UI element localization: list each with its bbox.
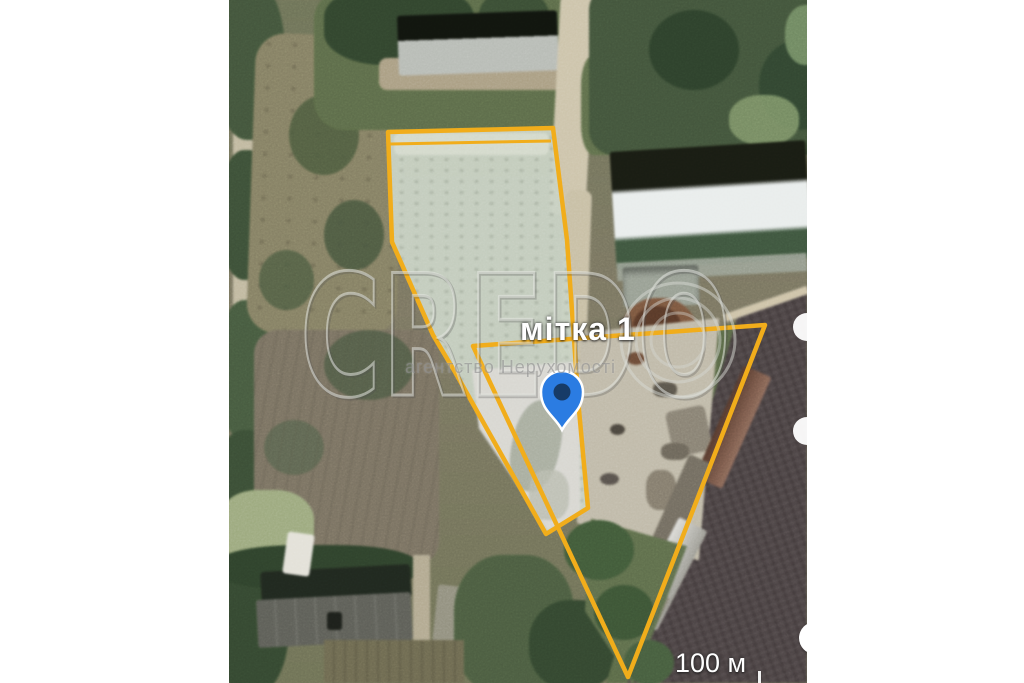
terrain-patch <box>259 250 314 310</box>
terrain-patch <box>324 330 414 400</box>
terrain-patch <box>653 382 677 397</box>
left-margin <box>0 0 229 683</box>
terrain-patch <box>324 200 384 270</box>
scale-label: 100 м <box>675 648 746 679</box>
terrain-patch <box>394 133 549 155</box>
terrain-patch <box>649 10 739 90</box>
terrain-patch <box>564 520 634 580</box>
terrain-patch <box>610 424 625 435</box>
terrain-patch <box>624 640 674 683</box>
right-margin <box>807 0 1024 683</box>
small-white-hut <box>282 531 315 576</box>
terrain-patch <box>264 420 324 475</box>
terrain-patch <box>729 95 799 145</box>
terrain-patch <box>529 470 569 520</box>
warehouse-building <box>610 140 807 270</box>
watermark-agency-text: агентство Нерухомості <box>405 357 616 378</box>
scale-bar-tick <box>758 671 761 683</box>
terrain-patch <box>600 473 619 485</box>
listing-photo: CREDO CREDO агентство Нерухомості мітка … <box>0 0 1024 683</box>
terrain-patch <box>661 443 689 460</box>
field-rows <box>324 640 464 683</box>
terrain-patch <box>327 612 342 630</box>
terrain-patch <box>594 585 654 640</box>
satellite-map[interactable]: CREDO CREDO агентство Нерухомості мітка … <box>229 0 807 683</box>
building-top <box>397 10 559 76</box>
marker-label: мітка 1 <box>520 311 636 348</box>
satellite-terrain <box>229 0 807 683</box>
terrain-patch <box>627 352 645 365</box>
